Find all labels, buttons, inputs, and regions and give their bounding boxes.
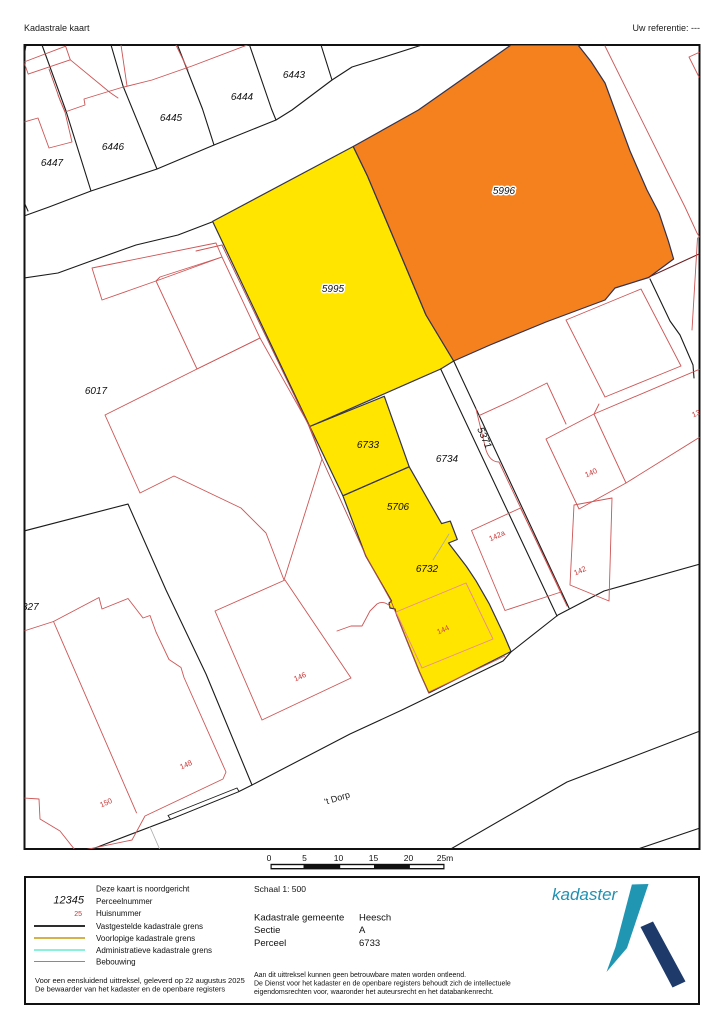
svg-text:6017: 6017 [85, 386, 108, 397]
svg-text:Kadastrale kaart: Kadastrale kaart [24, 23, 90, 33]
svg-text:25: 25 [74, 911, 82, 918]
svg-text:6444: 6444 [231, 92, 254, 103]
svg-text:De Dienst voor het kadaster en: De Dienst voor het kadaster en de openba… [254, 981, 511, 988]
svg-text:A: A [359, 925, 366, 936]
svg-text:kadaster: kadaster [552, 885, 619, 904]
svg-text:Administratieve kadastrale gre: Administratieve kadastrale grens [96, 946, 212, 955]
svg-text:6733: 6733 [359, 938, 380, 949]
svg-text:5995: 5995 [322, 284, 345, 295]
svg-text:20: 20 [404, 853, 414, 863]
svg-text:Schaal 1: 500: Schaal 1: 500 [254, 884, 306, 894]
svg-text:Sectie: Sectie [254, 925, 280, 936]
svg-text:Perceelnummer: Perceelnummer [96, 897, 153, 906]
svg-text:6445: 6445 [160, 113, 183, 124]
svg-text:Voorlopige kadastrale grens: Voorlopige kadastrale grens [96, 934, 195, 943]
svg-text:15: 15 [369, 853, 379, 863]
svg-text:10: 10 [334, 853, 344, 863]
svg-text:De bewaarder van het kadaster: De bewaarder van het kadaster en de open… [35, 985, 225, 994]
svg-text:327: 327 [22, 602, 39, 613]
svg-text:eigendomsrechten voor, waarond: eigendomsrechten voor, waaronder het aut… [254, 989, 494, 996]
svg-text:6446: 6446 [102, 142, 125, 153]
svg-text:6732: 6732 [416, 564, 439, 575]
svg-text:Heesch: Heesch [359, 913, 391, 924]
svg-text:Bebouwing: Bebouwing [96, 958, 136, 967]
svg-text:Deze kaart is noordgericht: Deze kaart is noordgericht [96, 885, 190, 894]
svg-text:Huisnummer: Huisnummer [96, 909, 142, 918]
svg-text:5706: 5706 [387, 502, 410, 513]
svg-text:6734: 6734 [436, 454, 459, 465]
svg-text:6447: 6447 [41, 158, 64, 169]
svg-text:12345: 12345 [53, 895, 84, 907]
svg-text:25m: 25m [437, 853, 454, 863]
svg-text:6733: 6733 [357, 440, 380, 451]
svg-text:5: 5 [302, 853, 307, 863]
svg-text:Uw referentie: ---: Uw referentie: --- [632, 23, 700, 33]
svg-text:Aan dit uittreksel kunnen geen: Aan dit uittreksel kunnen geen betrouwba… [254, 972, 466, 979]
svg-text:0: 0 [267, 853, 272, 863]
svg-text:Kadastrale gemeente: Kadastrale gemeente [254, 913, 344, 924]
svg-text:5996: 5996 [493, 186, 516, 197]
svg-text:Perceel: Perceel [254, 938, 286, 949]
svg-text:Vastgestelde kadastrale grens: Vastgestelde kadastrale grens [96, 922, 203, 931]
svg-text:6443: 6443 [283, 70, 306, 81]
